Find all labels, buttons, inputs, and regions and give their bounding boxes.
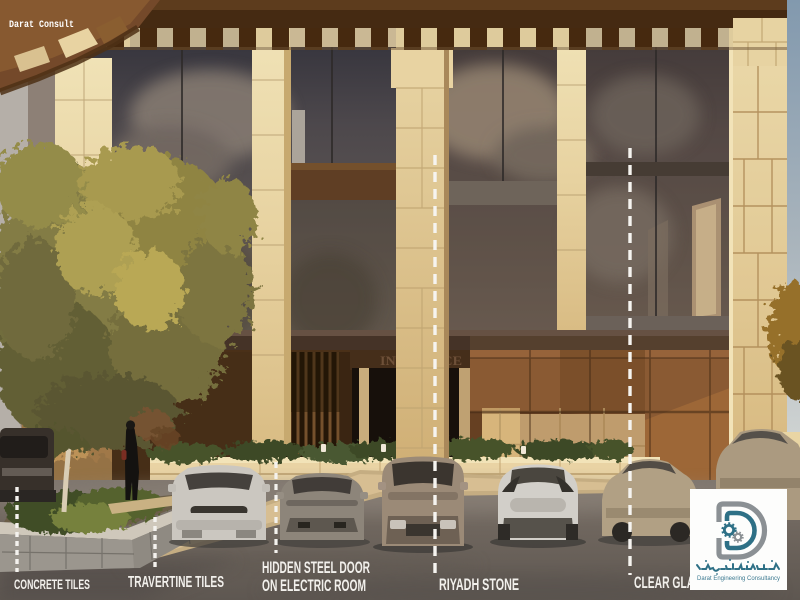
svg-text:ON ELECTRIC ROOM: ON ELECTRIC ROOM xyxy=(262,577,366,595)
svg-text:Darat Engineering Consultancy: Darat Engineering Consultancy xyxy=(697,575,781,582)
svg-text:HIDDEN STEEL DOOR: HIDDEN STEEL DOOR xyxy=(262,559,370,577)
svg-text:RIYADH STONE: RIYADH STONE xyxy=(439,576,519,594)
svg-text:Darat Consult: Darat Consult xyxy=(9,19,74,31)
svg-text:TRAVERTINE TILES: TRAVERTINE TILES xyxy=(128,574,224,591)
svg-text:CONCRETE TILES: CONCRETE TILES xyxy=(14,576,90,592)
